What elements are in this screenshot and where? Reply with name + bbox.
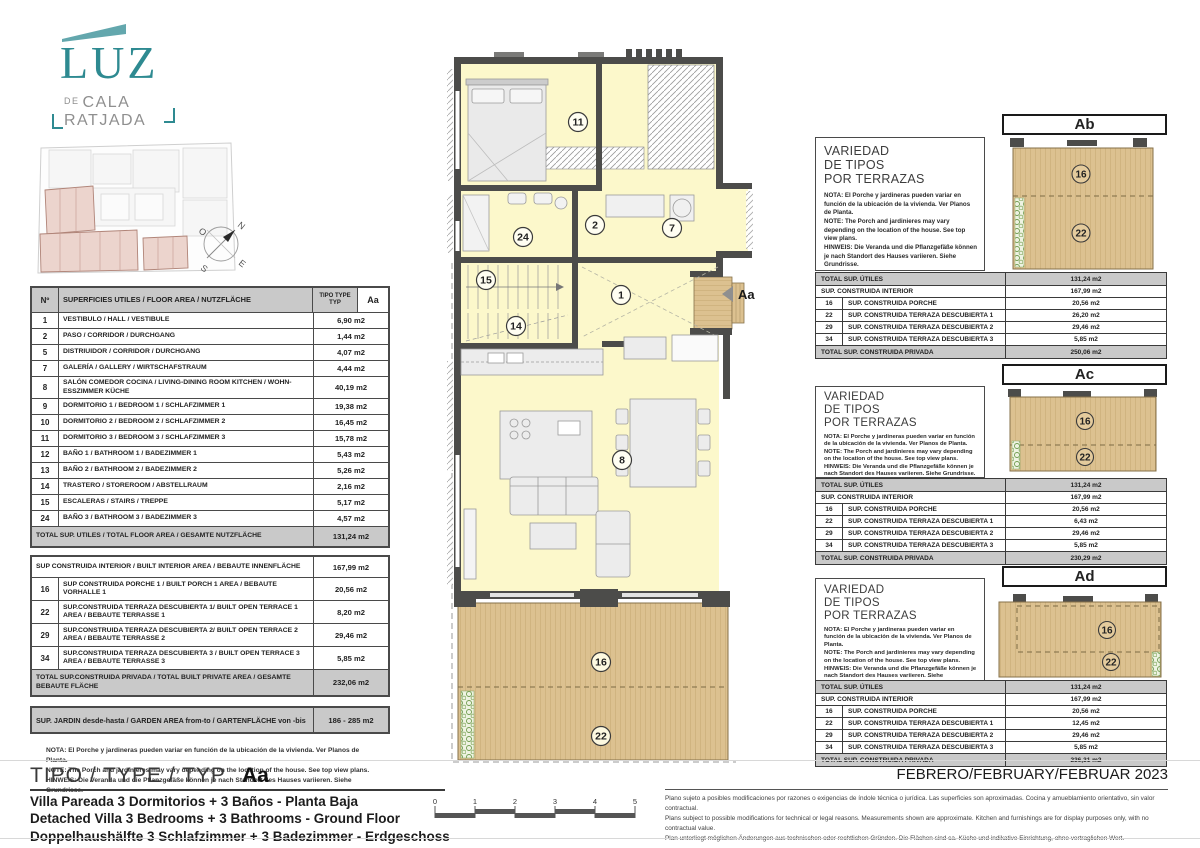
row-num: 14 — [32, 479, 59, 494]
table-row: 14TRASTERO / STOREROOM / ABSTELLRAUM2,16… — [32, 478, 388, 494]
variant-table-ab: TOTAL SUP. ÚTILES131,24 m2 SUP. CONSTRUI… — [815, 272, 1167, 359]
row-num: 1 — [32, 313, 59, 328]
row-value: 5,26 m2 — [313, 463, 388, 478]
variant-tab-ad: Ad — [1002, 566, 1167, 587]
row-num: 7 — [32, 361, 59, 376]
variant-table-ac: TOTAL SUP. ÚTILES131,24 m2 SUP. CONSTRUI… — [815, 478, 1167, 565]
variant-note-en: NOTE: The Porch and jardinieres may vary… — [824, 218, 977, 244]
variant-note: NOTA: El Porche y jardineras pueden vari… — [824, 192, 977, 270]
v-row: 34SUP. CONSTRUIDA TERRAZA DESCUBIERTA 35… — [816, 333, 1166, 345]
v-row: 22SUP. CONSTRUIDA TERRAZA DESCUBIERTA 11… — [816, 717, 1166, 729]
row-num: 2 — [32, 329, 59, 344]
variant-tab-ab: Ab — [1002, 114, 1167, 135]
row-desc: SUP CONSTRUIDA INTERIOR / BUILT INTERIOR… — [32, 557, 313, 577]
variant-note-es: NOTA: El Porche y jardineras pueden vari… — [824, 434, 977, 449]
row-value: 19,38 m2 — [313, 399, 388, 414]
v-row: SUP. CONSTRUIDA INTERIOR167,99 m2 — [816, 285, 1166, 297]
table-row: 5DISTRIUIDOR / CORRIDOR / DURCHGANG4,07 … — [32, 344, 388, 360]
table-row: 9DORMITORIO 1 / BEDROOM 1 / SCHLAFZIMMER… — [32, 398, 388, 414]
v-row: 34SUP. CONSTRUIDA TERRAZA DESCUBIERTA 35… — [816, 539, 1166, 551]
gallery-appliances — [606, 195, 694, 221]
v-row: 22SUP. CONSTRUIDA TERRAZA DESCUBIERTA 12… — [816, 309, 1166, 321]
row-desc: BAÑO 2 / BATHROOM 2 / BADEZIMMER 2 — [59, 463, 313, 478]
row-value: 5,17 m2 — [313, 495, 388, 510]
row-desc: DORMITORIO 2 / BEDROOM 2 / SCHLAFZIMMER … — [59, 415, 313, 430]
row-value: 4,44 m2 — [313, 361, 388, 376]
table-row: 11DORMITORIO 3 / BEDROOM 3 / SCHLAFZIMME… — [32, 430, 388, 446]
row-desc: SALÓN COMEDOR COCINA / LIVING-DINING ROO… — [59, 377, 313, 398]
row-value: 5,43 m2 — [313, 447, 388, 462]
kitchen-counter — [461, 349, 603, 375]
total-privada-row: TOTAL SUP.CONSTRUIDA PRIVADA / TOTAL BUI… — [32, 669, 388, 695]
v-row: 16SUP. CONSTRUIDA PORCHE20,56 m2 — [816, 297, 1166, 309]
row-desc: TRASTERO / STOREROOM / ABSTELLRAUM — [59, 479, 313, 494]
row-desc: VESTIBULO / HALL / VESTIBULE — [59, 313, 313, 328]
compass-e: E — [237, 258, 248, 270]
logo-bracket-left-icon — [52, 114, 63, 129]
variant-thumb-ab: 16 22 — [1005, 138, 1161, 271]
date: FEBRERO/FEBRUARY/FEBRUAR 2023 — [770, 766, 1168, 783]
logo-de: DE — [64, 96, 80, 106]
col-type-code-header: Aa — [357, 288, 388, 312]
legal-es: Plano sujeto a posibles modificaciones p… — [665, 794, 1170, 814]
col-tipo-header: TIPO TYPE TYP — [312, 288, 357, 312]
v-row: 29SUP. CONSTRUIDA TERRAZA DESCUBIERTA 22… — [816, 729, 1166, 741]
table-row: 8SALÓN COMEDOR COCINA / LIVING-DINING RO… — [32, 376, 388, 398]
garden-row: SUP. JARDIN desde-hasta / GARDEN AREA fr… — [32, 708, 388, 732]
table-row: 22SUP.CONSTRUIDA TERRAZA DESCUBIERTA 1/ … — [32, 600, 388, 623]
entry-porch — [694, 277, 744, 329]
v-row: TOTAL SUP. CONSTRUIDA PRIVADA250,06 m2 — [816, 345, 1166, 358]
footer-divider — [0, 760, 1200, 761]
row-desc: BAÑO 1 / BATHROOM 1 / BADEZIMMER 1 — [59, 447, 313, 462]
logo-line2: RATJADA — [64, 112, 146, 130]
v-row: SUP. CONSTRUIDA INTERIOR167,99 m2 — [816, 491, 1166, 503]
room-15-label: 15 — [480, 275, 492, 287]
row-num: 34 — [32, 647, 59, 669]
variant-panel-ac: Ac VARIEDAD DE TIPOS POR TERRAZAS NOTA: … — [815, 364, 1167, 557]
thumb-16-label: 16 — [1075, 170, 1087, 181]
row-desc: DISTRIUIDOR / CORRIDOR / DURCHGANG — [59, 345, 313, 360]
type-underline — [30, 789, 445, 791]
table-header-row: Nº SUPERFICIES UTILES / FLOOR AREA / NUT… — [32, 288, 388, 312]
row-num: 8 — [32, 377, 59, 398]
variant-panel-ab: Ab VARIEDAD DE TIPOS POR TERRAZAS NOTA: … — [815, 114, 1167, 351]
table-row: 29SUP.CONSTRUIDA TERRAZA DESCUBIERTA 2/ … — [32, 623, 388, 646]
scale-3: 3 — [553, 797, 557, 806]
row-desc: BAÑO 3 / BATHROOM 3 / BADEZIMMER 3 — [59, 511, 313, 526]
variant-note: NOTA: El Porche y jardineras pueden vari… — [824, 434, 977, 478]
row-desc: GALERÍA / GALLERY / WIRTSCHAFSTRAUM — [59, 361, 313, 376]
variant-thumb-ac: 16 22 — [1005, 389, 1161, 473]
plan-sheet: LUZ DECALA RATJADA N O E — [0, 0, 1200, 848]
room-22-label: 22 — [595, 731, 607, 743]
v-row: 22SUP. CONSTRUIDA TERRAZA DESCUBIERTA 16… — [816, 515, 1166, 527]
v-row: TOTAL SUP. CONSTRUIDA PRIVADA230,29 m2 — [816, 551, 1166, 564]
variant-title: VARIEDAD DE TIPOS POR TERRAZAS — [824, 391, 977, 430]
table-row: 1VESTIBULO / HALL / VESTIBULE6,90 m2 — [32, 312, 388, 328]
area-table: Nº SUPERFICIES UTILES / FLOOR AREA / NUT… — [30, 286, 390, 795]
row-value: 4,07 m2 — [313, 345, 388, 360]
row-desc: ESCALERAS / STAIRS / TREPPE — [59, 495, 313, 510]
row-desc: SUP.CONSTRUIDA TERRAZA DESCUBIERTA 3 / B… — [59, 647, 313, 669]
variant-info-ac: VARIEDAD DE TIPOS POR TERRAZAS NOTA: El … — [815, 386, 985, 478]
table-row: 24BAÑO 3 / BATHROOM 3 / BADEZIMMER 34,57… — [32, 510, 388, 526]
variant-title: VARIEDAD DE TIPOS POR TERRAZAS — [824, 144, 977, 186]
legal-en: Plans subject to possible modifications … — [665, 814, 1170, 834]
area-table-built: SUP CONSTRUIDA INTERIOR / BUILT INTERIOR… — [30, 555, 390, 697]
row-num: 12 — [32, 447, 59, 462]
variant-table-ad: TOTAL SUP. ÚTILES131,24 m2 SUP. CONSTRUI… — [815, 680, 1167, 767]
room-14-label: 14 — [510, 321, 522, 333]
row-num: 22 — [32, 601, 59, 623]
planter-strip — [461, 691, 474, 758]
scale-bar: 0 1 2 3 4 5 — [433, 796, 639, 824]
variant-tab-ac: Ac — [1002, 364, 1167, 385]
type-desc-en: Detached Villa 3 Bedrooms + 3 Bathrooms … — [30, 810, 450, 827]
table-row: 10DORMITORIO 2 / BEDROOM 2 / SCHLAFZIMME… — [32, 414, 388, 430]
scale-1: 1 — [473, 797, 477, 806]
room-11-label: 11 — [572, 117, 583, 129]
row-num: 16 — [32, 578, 59, 600]
table-row: 7GALERÍA / GALLERY / WIRTSCHAFSTRAUM4,44… — [32, 360, 388, 376]
row-value: 167,99 m2 — [313, 557, 388, 577]
variant-info-ab: VARIEDAD DE TIPOS POR TERRAZAS NOTA: El … — [815, 137, 985, 271]
row-desc: SUP CONSTRUIDA PORCHE 1 / BUILT PORCH 1 … — [59, 578, 313, 600]
row-value: 131,24 m2 — [313, 527, 388, 546]
variant-note-en: NOTE: The Porch and jardinieres may vary… — [824, 650, 977, 666]
room-1-label: 1 — [618, 290, 624, 302]
row-desc: SUP.CONSTRUIDA TERRAZA DESCUBIERTA 1/ BU… — [59, 601, 313, 623]
room-8-label: 8 — [619, 455, 625, 467]
variant-note: NOTA: El Porche y jardineras pueden vari… — [824, 627, 977, 682]
row-value: 29,46 m2 — [313, 624, 388, 646]
col-desc-header: SUPERFICIES UTILES / FLOOR AREA / NUTZFL… — [59, 288, 312, 312]
type-heading: TIPO / TYPE / TYPAa — [30, 764, 269, 788]
row-desc: DORMITORIO 1 / BEDROOM 1 / SCHLAFZIMMER … — [59, 399, 313, 414]
row-num: 29 — [32, 624, 59, 646]
row-value: 16,45 m2 — [313, 415, 388, 430]
closet-rail — [538, 147, 644, 169]
v-row: 16SUP. CONSTRUIDA PORCHE20,56 m2 — [816, 705, 1166, 717]
table-row: 15ESCALERAS / STAIRS / TREPPE5,17 m2 — [32, 494, 388, 510]
interior-row: SUP CONSTRUIDA INTERIOR / BUILT INTERIOR… — [32, 557, 388, 577]
row-value: 6,90 m2 — [313, 313, 388, 328]
row-value: 2,16 m2 — [313, 479, 388, 494]
v-row: 29SUP. CONSTRUIDA TERRAZA DESCUBIERTA 22… — [816, 527, 1166, 539]
table-row: 2PASO / CORRIDOR / DURCHGANG1,44 m2 — [32, 328, 388, 344]
row-num: 10 — [32, 415, 59, 430]
scale-2: 2 — [513, 797, 517, 806]
row-num: 9 — [32, 399, 59, 414]
type-label: TIPO / TYPE / TYP — [30, 764, 226, 787]
variant-note-es: NOTA: El Porche y jardineras pueden vari… — [824, 627, 977, 650]
scale-0: 0 — [433, 797, 437, 806]
v-row: TOTAL SUP. ÚTILES131,24 m2 — [816, 681, 1166, 693]
logo: LUZ DECALA RATJADA — [38, 18, 218, 138]
variant-note-en: NOTE: The Porch and jardinieres may vary… — [824, 449, 977, 464]
thumb-16-label: 16 — [1079, 417, 1091, 428]
row-desc: SUP.CONSTRUIDA TERRAZA DESCUBIERTA 2/ BU… — [59, 624, 313, 646]
table-row: 34SUP.CONSTRUIDA TERRAZA DESCUBIERTA 3 /… — [32, 646, 388, 669]
row-num: 24 — [32, 511, 59, 526]
row-desc: TOTAL SUP.CONSTRUIDA PRIVADA / TOTAL BUI… — [32, 670, 313, 695]
row-num: 11 — [32, 431, 59, 446]
v-row: 16SUP. CONSTRUIDA PORCHE20,56 m2 — [816, 503, 1166, 515]
thumb-22-label: 22 — [1079, 453, 1091, 464]
row-value: 1,44 m2 — [313, 329, 388, 344]
note-es: NOTA: El Porche y jardineras pueden vari… — [46, 746, 382, 766]
room-16-label: 16 — [595, 657, 607, 669]
variant-title: VARIEDAD DE TIPOS POR TERRAZAS — [824, 584, 977, 623]
area-table-main: Nº SUPERFICIES UTILES / FLOOR AREA / NUT… — [30, 286, 390, 548]
variant-thumb-ad: 16 22 — [995, 594, 1165, 679]
compass-n: N — [236, 220, 247, 232]
col-num-header: Nº — [32, 288, 59, 312]
row-value: 5,85 m2 — [313, 647, 388, 669]
total-utiles-row: TOTAL SUP. UTILES / TOTAL FLOOR AREA / G… — [32, 526, 388, 546]
roof-planters — [626, 49, 682, 57]
v-row: 29SUP. CONSTRUIDA TERRAZA DESCUBIERTA 22… — [816, 321, 1166, 333]
variant-info-ad: VARIEDAD DE TIPOS POR TERRAZAS NOTA: El … — [815, 578, 985, 682]
v-row: SUP. CONSTRUIDA INTERIOR167,99 m2 — [816, 693, 1166, 705]
variant-note-de: HINWEIS: Die Veranda und die Pflanzgefäß… — [824, 244, 977, 270]
type-desc-es: Villa Pareada 3 Dormitorios + 3 Baños - … — [30, 793, 450, 810]
row-desc: TOTAL SUP. UTILES / TOTAL FLOOR AREA / G… — [32, 527, 313, 546]
table-row: 12BAÑO 1 / BATHROOM 1 / BADEZIMMER 15,43… — [32, 446, 388, 462]
wardrobe — [648, 65, 714, 169]
row-value: 232,06 m2 — [313, 670, 388, 695]
row-value: 4,57 m2 — [313, 511, 388, 526]
row-value: 20,56 m2 — [313, 578, 388, 600]
row-value: 186 - 285 m2 — [313, 708, 388, 732]
area-table-garden: SUP. JARDIN desde-hasta / GARDEN AREA fr… — [30, 706, 390, 734]
legal-text: Plano sujeto a posibles modificaciones p… — [665, 794, 1170, 844]
floor-plan: 11 24 2 7 15 14 1 8 16 22 Aa — [430, 25, 780, 765]
bed — [466, 79, 548, 181]
table-row: 16SUP CONSTRUIDA PORCHE 1 / BUILT PORCH … — [32, 577, 388, 600]
logo-title: LUZ — [60, 40, 158, 86]
logo-subtitle: DECALA RATJADA — [64, 94, 146, 131]
variant-note-es: NOTA: El Porche y jardineras pueden vari… — [824, 192, 977, 218]
legal-divider — [665, 789, 1168, 790]
thumb-22-label: 22 — [1075, 229, 1087, 240]
row-value: 15,78 m2 — [313, 431, 388, 446]
row-desc: PASO / CORRIDOR / DURCHGANG — [59, 329, 313, 344]
row-desc: SUP. JARDIN desde-hasta / GARDEN AREA fr… — [32, 708, 313, 732]
row-num: 13 — [32, 463, 59, 478]
scale-4: 4 — [593, 797, 597, 806]
room-24-label: 24 — [517, 232, 529, 244]
thumb-22-label: 22 — [1105, 658, 1117, 669]
v-row: TOTAL SUP. ÚTILES131,24 m2 — [816, 273, 1166, 285]
row-value: 8,20 m2 — [313, 601, 388, 623]
table-row: 13BAÑO 2 / BATHROOM 2 / BADEZIMMER 25,26… — [32, 462, 388, 478]
row-num: 5 — [32, 345, 59, 360]
type-code: Aa — [242, 764, 269, 787]
thumb-16-label: 16 — [1101, 626, 1113, 637]
section-marker-label: Aa — [738, 287, 755, 302]
row-desc: DORMITORIO 3 / BEDROOM 3 / SCHLAFZIMMER … — [59, 431, 313, 446]
logo-line1: CALA — [83, 94, 131, 111]
scale-5: 5 — [633, 797, 637, 806]
dining-set — [616, 399, 710, 487]
variant-panel-ad: Ad VARIEDAD DE TIPOS POR TERRAZAS NOTA: … — [815, 566, 1167, 759]
row-value: 40,19 m2 — [313, 377, 388, 398]
room-7-label: 7 — [669, 223, 675, 235]
variant-note-de: HINWEIS: Die Veranda und die Pflanzgefäß… — [824, 464, 977, 478]
row-num: 15 — [32, 495, 59, 510]
v-row: 34SUP. CONSTRUIDA TERRAZA DESCUBIERTA 35… — [816, 741, 1166, 753]
bottom-divider — [0, 838, 1200, 839]
room-2-label: 2 — [592, 220, 598, 232]
v-row: TOTAL SUP. ÚTILES131,24 m2 — [816, 479, 1166, 491]
site-plan: N O E S — [35, 142, 250, 278]
type-desc-de: Doppelhaushälfte 3 Schlafzimmer + 3 Bade… — [30, 828, 450, 845]
logo-bracket-right-icon — [164, 108, 175, 123]
